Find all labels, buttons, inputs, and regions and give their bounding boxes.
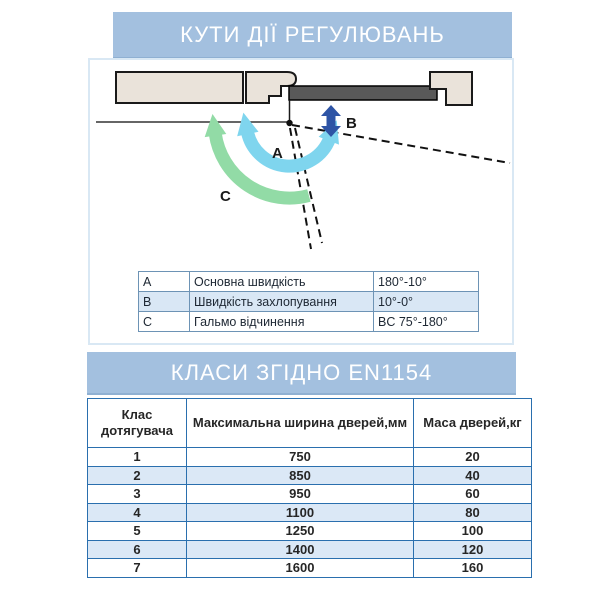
legend-key: B [139,292,190,312]
mass-cell: 40 [414,466,532,485]
class-cell: 1 [88,448,187,467]
class-cell: 5 [88,522,187,541]
legend-value: BC 75°-180° [374,312,479,332]
diagram-label-c: C [220,188,231,205]
class-cell: 4 [88,503,187,522]
legend-name: Гальмо відчинення [190,312,374,332]
legend-name: Швидкість захлопування [190,292,374,312]
header-max-width: Максимальна ширина дверей,мм [187,399,414,448]
mass-cell: 100 [414,522,532,541]
classes-header-row: Клас дотягувача Максимальна ширина двере… [88,399,532,448]
door-leaf [289,86,437,100]
table-row: 2 850 40 [88,466,532,485]
legend-key: A [139,272,190,292]
class-cell: 7 [88,559,187,578]
legend-value: 10°-0° [374,292,479,312]
legend-name: Основна швидкість [190,272,374,292]
door-closer-angle-diagram: A B C A Основна швидкість 180°-10° B Шви… [88,58,514,345]
angle-legend-table: A Основна швидкість 180°-10° B Швидкість… [138,271,479,332]
en1154-classes-table: Клас дотягувача Максимальна ширина двере… [87,398,532,578]
dashed-line-75deg-a [290,128,311,249]
width-cell: 1600 [187,559,414,578]
legend-row-a: A Основна швидкість 180°-10° [139,272,479,292]
class-cell: 6 [88,540,187,559]
width-cell: 850 [187,466,414,485]
arc-a-main-speed [247,132,329,166]
width-cell: 1100 [187,503,414,522]
mass-cell: 160 [414,559,532,578]
width-cell: 950 [187,485,414,504]
legend-row-b: B Швидкість захлопування 10°-0° [139,292,479,312]
table-row: 3 950 60 [88,485,532,504]
header-class: Клас дотягувача [88,399,187,448]
table-row: 1 750 20 [88,448,532,467]
width-cell: 750 [187,448,414,467]
angles-section-title: КУТИ ДІЇ РЕГУЛЮВАНЬ [113,12,512,59]
classes-section-title: КЛАСИ ЗГІДНО EN1154 [87,352,516,395]
mass-cell: 80 [414,503,532,522]
hinge-pivot-point [286,120,292,126]
width-cell: 1250 [187,522,414,541]
table-row: 6 1400 120 [88,540,532,559]
table-row: 5 1250 100 [88,522,532,541]
legend-row-c: C Гальмо відчинення BC 75°-180° [139,312,479,332]
mass-cell: 20 [414,448,532,467]
wall-section-left [116,72,243,103]
header-door-mass: Маса дверей,кг [414,399,532,448]
diagram-label-a: A [272,145,283,162]
table-row: 7 1600 160 [88,559,532,578]
mass-cell: 60 [414,485,532,504]
legend-key: C [139,312,190,332]
table-row: 4 1100 80 [88,503,532,522]
legend-value: 180°-10° [374,272,479,292]
mass-cell: 120 [414,540,532,559]
class-cell: 3 [88,485,187,504]
diagram-label-b: B [346,115,357,132]
class-cell: 2 [88,466,187,485]
width-cell: 1400 [187,540,414,559]
